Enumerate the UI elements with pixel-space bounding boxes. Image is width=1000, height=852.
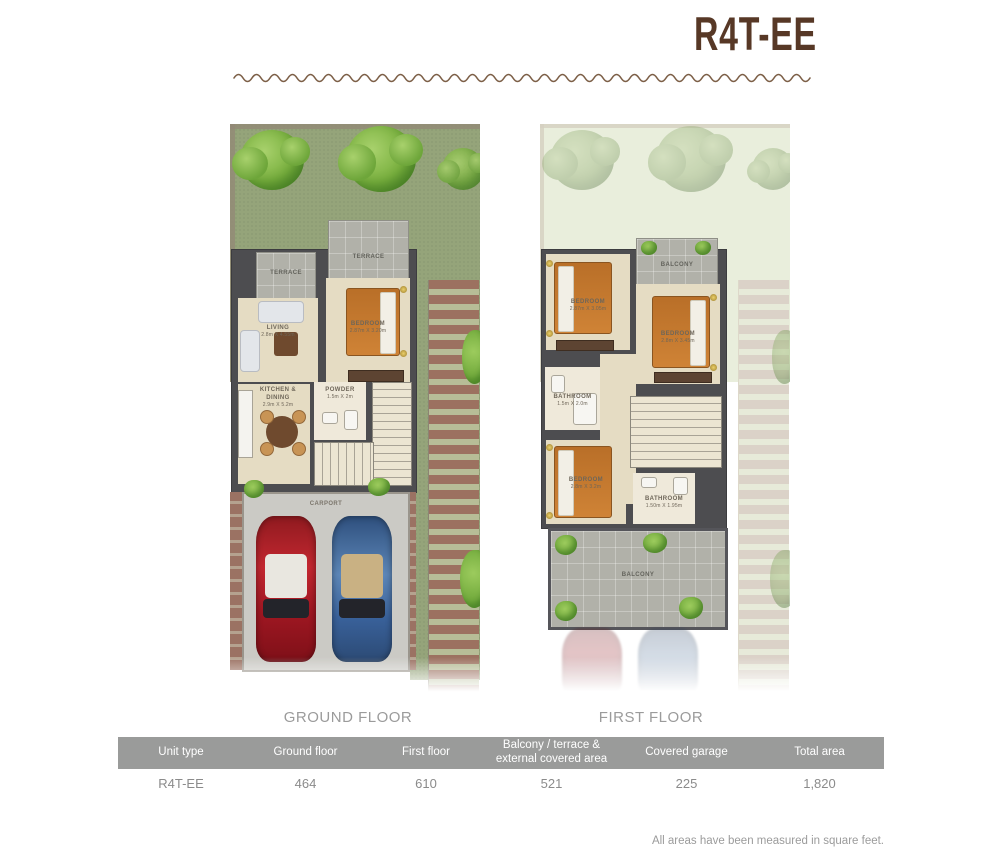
bedside-lamp [400, 286, 407, 293]
kitchen-dining: KITCHEN & DINING 2.9m X 5.2m [238, 384, 310, 484]
room-dims: 1.5m X 2m [314, 394, 366, 401]
bedroom-2: BEDROOM 2.8m X 3.45m [636, 284, 720, 384]
terrace-left: TERRACE [256, 252, 316, 300]
header-covered-garage: Covered garage [618, 744, 755, 762]
shrub [462, 330, 480, 384]
fence-faded [540, 124, 790, 128]
room-dims: 1.50m X 1.95m [633, 503, 695, 510]
ground-floor-plan: TERRACE TERRACE LIVING 2.8m X 4.55m BEDR… [230, 122, 480, 700]
room-name: POWDER [325, 387, 354, 393]
room-label: TERRACE [257, 269, 315, 277]
header-balcony-area: Balcony / terrace & external covered are… [485, 737, 618, 769]
room-label: TERRACE [329, 253, 408, 261]
bathroom-2: BATHROOM 1.50m X 1.95m [633, 473, 695, 524]
plant [643, 533, 667, 553]
room-label: BEDROOM 2.87m X 3.05m [546, 298, 630, 313]
paved-column [230, 492, 242, 670]
bedroom: BEDROOM 2.87m X 3.20m [326, 278, 410, 382]
room-label: KITCHEN & DINING 2.9m X 5.2m [248, 386, 308, 409]
first-floor-plan: BALCONY BEDROOM 2.87m X 3.05m BEDROOM [540, 122, 790, 700]
toilet [551, 375, 565, 393]
plan-fade [540, 657, 790, 700]
blue-car [332, 516, 392, 662]
plan-fade [230, 657, 480, 700]
header-ground-floor: Ground floor [244, 744, 367, 762]
room-label: BATHROOM 1.50m X 1.95m [633, 495, 695, 510]
carport: CARPORT [242, 492, 410, 672]
fence [230, 124, 480, 129]
shrub [460, 550, 480, 608]
bedside-lamp [400, 350, 407, 357]
room-dims: 2.87m X 3.20m [326, 328, 410, 335]
header-unit-type: Unit type [118, 744, 244, 762]
sink [322, 412, 338, 424]
red-car [256, 516, 316, 662]
room-label: BALCONY [637, 261, 717, 269]
plant [695, 241, 711, 255]
room-name: BATHROOM [645, 496, 683, 502]
chair [260, 442, 274, 456]
ground-floor-caption: GROUND FLOOR [223, 709, 473, 726]
shrub-faded [772, 330, 790, 384]
shrub-faded [770, 550, 790, 608]
powder-room: POWDER 1.5m X 2m [314, 382, 366, 440]
chair [292, 410, 306, 424]
sink [641, 477, 657, 488]
tree-faded [656, 126, 726, 192]
staircase [314, 442, 374, 486]
bedside-lamp [546, 512, 553, 519]
bedside-lamp [710, 294, 717, 301]
dresser [348, 370, 404, 382]
car-windshield [263, 599, 309, 618]
page-title: R4T-EE [694, 6, 838, 61]
table-row: R4T-EE 464 610 521 225 1,820 [118, 776, 884, 791]
room-label: CARPORT [244, 500, 408, 508]
plant [555, 535, 577, 555]
room-name: BEDROOM [351, 321, 385, 327]
bedside-lamp [546, 444, 553, 451]
tree [346, 126, 416, 192]
first-floor-caption: FIRST FLOOR [526, 709, 776, 726]
bedroom-1: BEDROOM 2.87m X 3.05m [546, 254, 630, 350]
bedside-lamp [546, 260, 553, 267]
room-label: BALCONY [551, 571, 725, 579]
chair [292, 442, 306, 456]
table-header-row: Unit type Ground floor First floor Balco… [118, 737, 884, 769]
plant [679, 597, 703, 619]
cell-balcony-area: 521 [485, 776, 618, 791]
room-name: BEDROOM [569, 477, 603, 483]
chair [260, 410, 274, 424]
room-dims: 2.8m X 3.45m [636, 338, 720, 345]
room-name: BATHROOM [553, 394, 591, 400]
room-dims: 2.8m X 3.2m [546, 484, 626, 491]
room-dims: 2.8m X 4.55m [238, 332, 318, 339]
room-name: BEDROOM [661, 331, 695, 337]
footer-note: All areas have been measured in square f… [652, 835, 884, 847]
plant [641, 241, 657, 255]
room-dims: 1.5m X 2.0m [545, 401, 600, 408]
plant [555, 601, 577, 621]
staircase [372, 382, 412, 486]
room-label: LIVING 2.8m X 4.55m [238, 324, 318, 339]
sofa [258, 301, 304, 323]
room-label: POWDER 1.5m X 2m [314, 386, 366, 401]
bedside-lamp [710, 364, 717, 371]
dresser [654, 372, 712, 383]
room-label: BEDROOM 2.8m X 3.45m [636, 330, 720, 345]
bedroom-3: BEDROOM 2.8m X 3.2m [546, 440, 626, 524]
tree [442, 148, 480, 190]
living-room: LIVING 2.8m X 4.55m [238, 298, 318, 382]
room-name: LIVING [267, 325, 289, 331]
cell-total-area: 1,820 [755, 776, 884, 791]
room-label: BEDROOM 2.87m X 3.20m [326, 320, 410, 335]
bathroom-1: BATHROOM 1.5m X 2.0m [545, 367, 600, 430]
room-dims: 2.9m X 5.2m [248, 402, 308, 409]
house-outline: TERRACE TERRACE LIVING 2.8m X 4.55m BEDR… [232, 250, 416, 492]
bedside-lamp [546, 330, 553, 337]
room-name: KITCHEN & DINING [260, 387, 296, 401]
dresser [556, 340, 614, 351]
toilet [673, 477, 688, 495]
car-seats [265, 554, 307, 598]
house-outline: BALCONY BEDROOM 2.87m X 3.05m BEDROOM [542, 250, 726, 528]
header-total-area: Total area [755, 744, 884, 762]
tree-faded [752, 148, 790, 190]
toilet [344, 410, 358, 430]
room-label: BEDROOM 2.8m X 3.2m [546, 476, 626, 491]
wave-divider [233, 70, 813, 86]
header-first-floor: First floor [367, 744, 485, 762]
tree [240, 130, 304, 190]
cell-first-floor: 610 [367, 776, 485, 791]
tree-faded [550, 130, 614, 190]
staircase [630, 396, 722, 468]
room-label: BATHROOM 1.5m X 2.0m [545, 393, 600, 408]
room-name: BEDROOM [571, 299, 605, 305]
room-dims: 2.87m X 3.05m [546, 306, 630, 313]
area-table: Unit type Ground floor First floor Balco… [118, 737, 884, 791]
cell-covered-garage: 225 [618, 776, 755, 791]
cell-ground-floor: 464 [244, 776, 367, 791]
car-windshield [339, 599, 385, 618]
balcony-bottom: BALCONY [548, 528, 728, 630]
cell-unit-type: R4T-EE [118, 776, 244, 791]
car-seats [341, 554, 383, 598]
